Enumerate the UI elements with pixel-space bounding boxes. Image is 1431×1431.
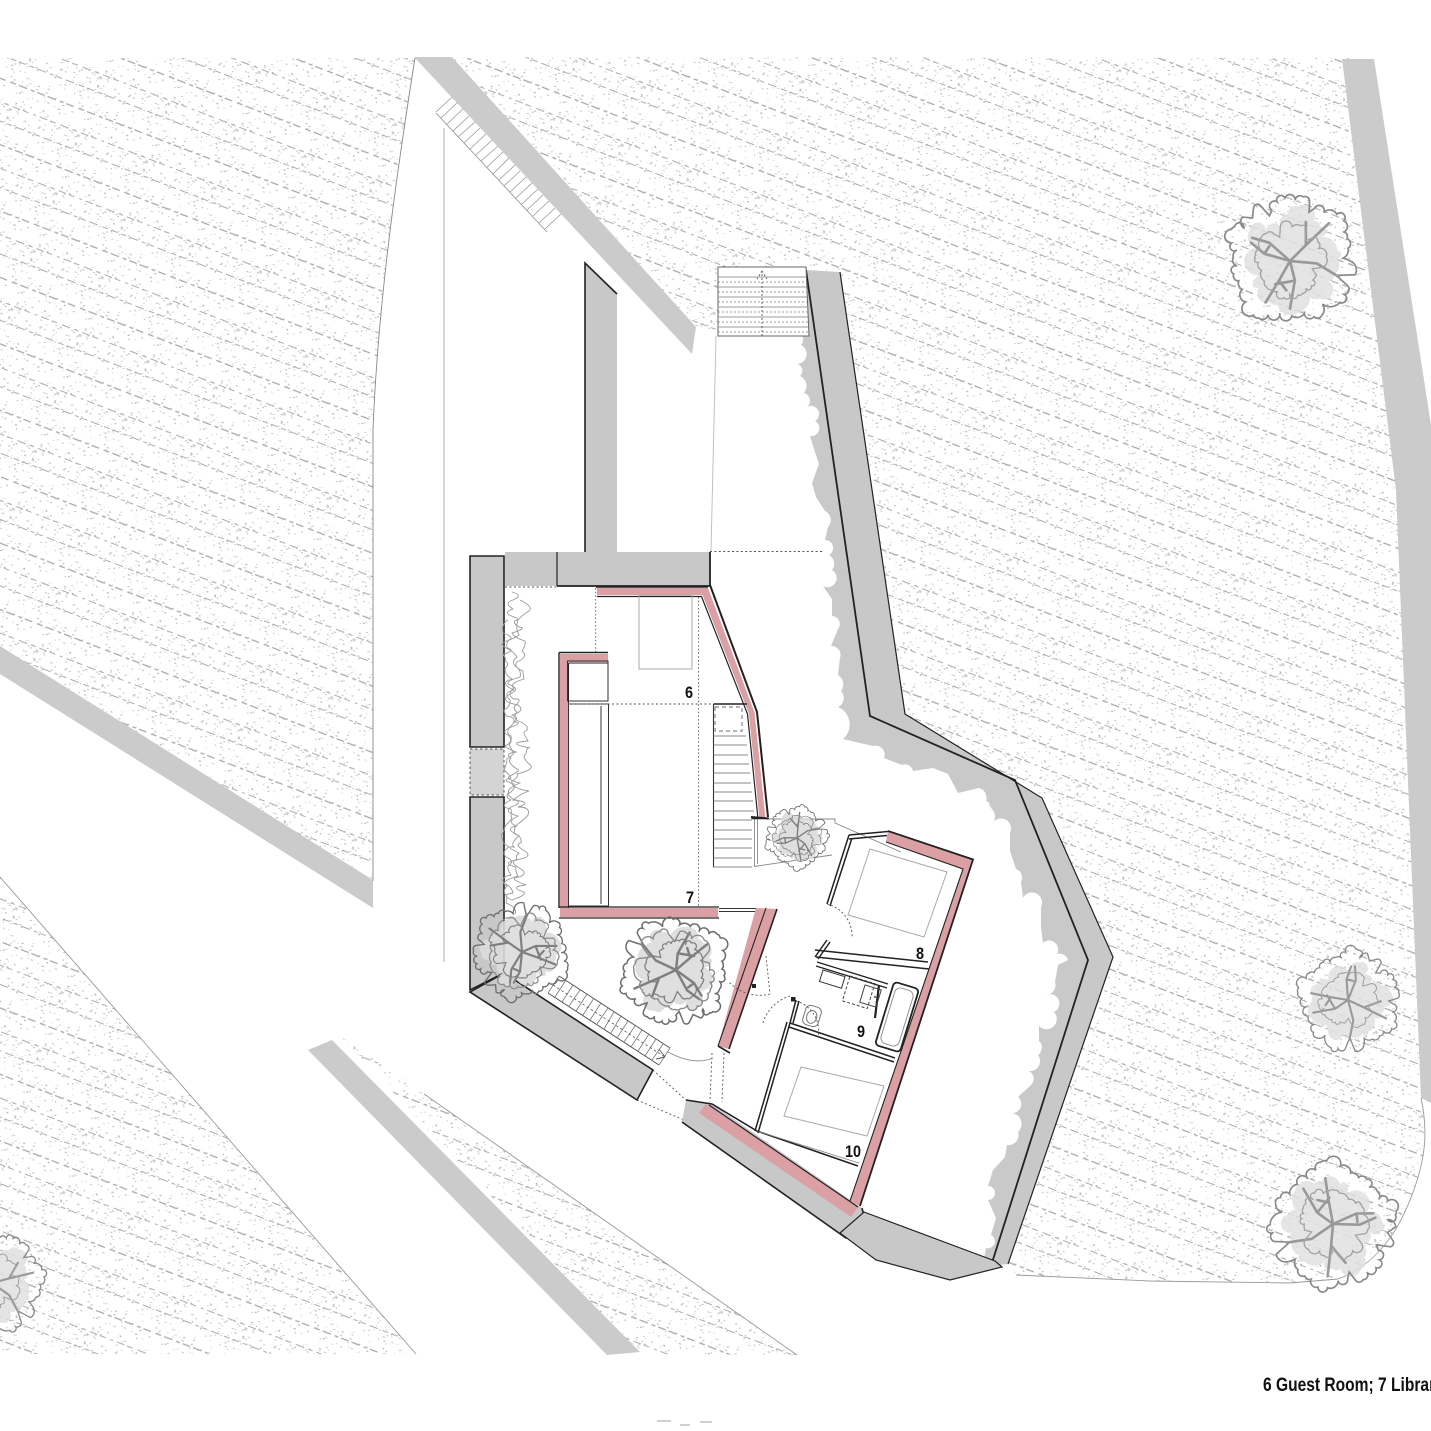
svg-text:7: 7 (686, 889, 694, 907)
svg-text:8: 8 (916, 945, 924, 963)
svg-text:9: 9 (857, 1023, 865, 1041)
svg-text:6: 6 (685, 684, 693, 702)
svg-text:6 Guest Room; 7 Library; 8: 6 Guest Room; 7 Library; 8 (1263, 1374, 1431, 1396)
svg-text:10: 10 (845, 1143, 861, 1161)
